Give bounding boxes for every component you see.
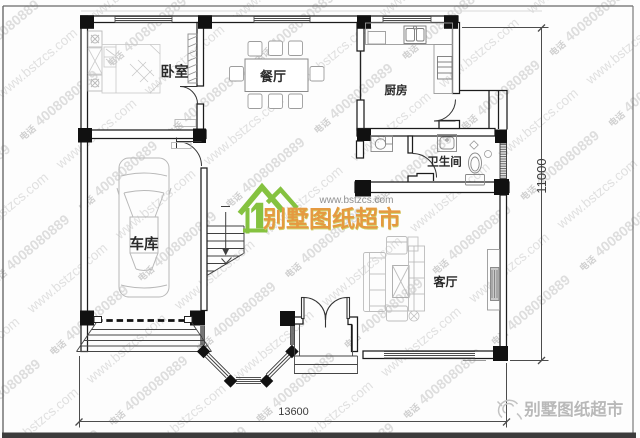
svg-text:4008080889: 4008080889: [121, 352, 191, 414]
svg-text:电话: 电话: [17, 123, 38, 143]
svg-text:电话: 电话: [47, 337, 68, 357]
svg-text:电话: 电话: [105, 49, 126, 69]
svg-text:4008080889: 4008080889: [2, 211, 72, 273]
svg-text:电话: 电话: [547, 38, 568, 58]
svg-text:4008080889: 4008080889: [120, 0, 190, 55]
svg-text:4008080889: 4008080889: [238, 134, 308, 196]
svg-text:电话: 电话: [401, 401, 422, 421]
svg-text:4008080889: 4008080889: [268, 348, 338, 410]
svg-text:电话: 电话: [606, 109, 627, 129]
svg-text:别墅图纸超市: 别墅图纸超市: [523, 399, 623, 419]
svg-text:4008080889: 4008080889: [209, 278, 279, 340]
svg-text:电话: 电话: [0, 267, 9, 287]
svg-text:电话: 电话: [283, 260, 304, 280]
svg-text:4008080889: 4008080889: [91, 137, 161, 199]
svg-text:厨房: 厨房: [385, 83, 408, 97]
svg-text:11000: 11000: [534, 158, 549, 193]
svg-text:电话: 电话: [312, 116, 333, 136]
svg-text:4008080889: 4008080889: [473, 56, 543, 118]
svg-text:13600: 13600: [278, 406, 309, 418]
svg-text:卫生间: 卫生间: [427, 155, 462, 169]
svg-text:4008080889: 4008080889: [0, 355, 44, 417]
svg-text:电话: 电话: [106, 408, 127, 428]
svg-text:电话: 电话: [430, 257, 451, 277]
svg-text:4008080889: 4008080889: [31, 67, 101, 129]
svg-text:4008080889: 4008080889: [620, 53, 640, 115]
svg-text:4008080889: 4008080889: [561, 0, 631, 45]
svg-text:客厅: 客厅: [432, 274, 457, 289]
svg-text:4008080889: 4008080889: [150, 208, 220, 270]
svg-text:4008080889: 4008080889: [0, 0, 42, 59]
svg-text:电话: 电话: [577, 253, 598, 273]
svg-text:www.bstzcs.com: www.bstzcs.com: [319, 195, 394, 206]
svg-text:餐厅: 餐厅: [259, 69, 286, 84]
svg-text:4008080889: 4008080889: [503, 271, 573, 333]
svg-text:别墅图纸超市: 别墅图纸超市: [262, 206, 401, 232]
svg-text:卧室: 卧室: [161, 64, 189, 80]
svg-text:车库: 车库: [130, 235, 159, 253]
